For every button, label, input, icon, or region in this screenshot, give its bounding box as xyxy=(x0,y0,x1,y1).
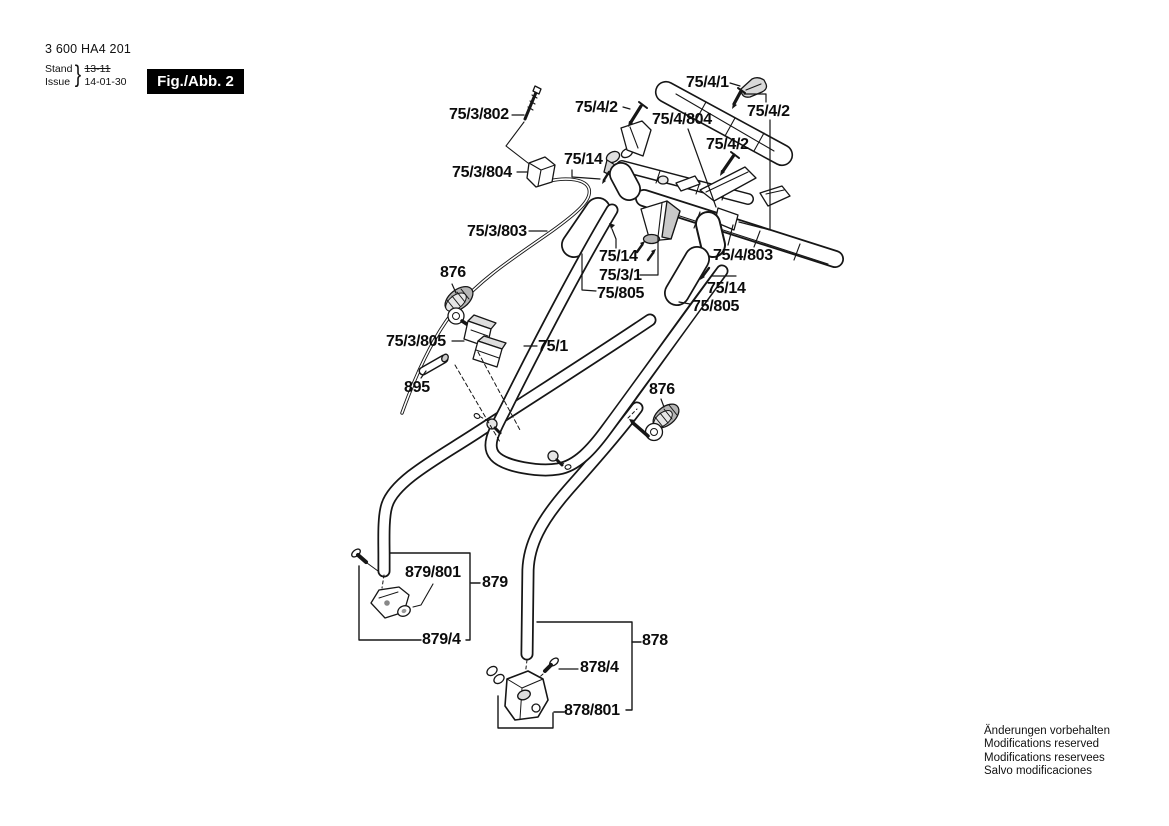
part-label-75-4-2-b: 75/4/2 xyxy=(575,99,618,116)
part-label-75-3-1: 75/3/1 xyxy=(599,267,642,284)
stand-date: 13-11 xyxy=(84,63,126,76)
part-label-75-4-804: 75/4/804 xyxy=(652,111,712,128)
part-label-879-4: 879/4 xyxy=(422,631,461,648)
footer-notes: Änderungen vorbehalten Modifications res… xyxy=(984,725,1110,779)
revision-block: Stand Issue } 13-11 14-01-30 xyxy=(45,63,127,88)
part-label-879-801: 879/801 xyxy=(405,564,461,581)
cable-bolt-and-nut xyxy=(506,86,555,187)
part-label-75-3-804: 75/3/804 xyxy=(452,164,512,181)
footer-note-de: Änderungen vorbehalten xyxy=(984,725,1110,738)
stand-label: Stand xyxy=(45,63,72,76)
parts-diagram-sheet: 3 600 HA4 201 Stand Issue } 13-11 14-01-… xyxy=(0,0,1169,826)
part-label-879: 879 xyxy=(482,574,508,591)
part-label-878-801: 878/801 xyxy=(564,702,620,719)
base-group-879 xyxy=(350,547,480,640)
part-label-75-1: 75/1 xyxy=(538,338,568,355)
part-label-876-a: 876 xyxy=(440,264,466,281)
part-label-75-3-805: 75/3/805 xyxy=(386,333,446,350)
upper-handle-tube xyxy=(473,210,722,470)
part-label-75-3-803: 75/3/803 xyxy=(467,223,527,240)
part-label-75-805-a: 75/805 xyxy=(597,285,644,302)
part-label-75-4-2-c: 75/4/2 xyxy=(706,136,749,153)
footer-note-en: Modifications reserved xyxy=(984,738,1110,751)
issue-label: Issue xyxy=(45,76,72,89)
part-number: 3 600 HA4 201 xyxy=(45,42,131,56)
part-label-75-4-2-a: 75/4/2 xyxy=(747,103,790,120)
issue-date: 14-01-30 xyxy=(84,76,126,89)
part-label-876-b: 876 xyxy=(649,381,675,398)
footer-note-es: Salvo modificaciones xyxy=(984,765,1110,778)
part-label-895: 895 xyxy=(404,379,430,396)
part-label-878-4: 878/4 xyxy=(580,659,619,676)
part-label-75-805-b: 75/805 xyxy=(692,298,739,315)
footer-note-fr: Modifications reservees xyxy=(984,752,1110,765)
cable-clamp xyxy=(464,315,506,367)
part-label-75-14-c: 75/14 xyxy=(707,280,746,297)
figure-label: Fig./Abb. 2 xyxy=(147,69,244,94)
part-label-75-14-b: 75/14 xyxy=(599,248,638,265)
funnel-75-3-1 xyxy=(641,201,680,244)
revision-brace: } xyxy=(75,69,81,82)
part-label-75-4-1: 75/4/1 xyxy=(686,74,729,91)
part-label-75-3-802: 75/3/802 xyxy=(449,106,509,123)
part-label-878: 878 xyxy=(642,632,668,649)
part-label-75-4-803: 75/4/803 xyxy=(713,247,773,264)
part-label-75-14-a: 75/14 xyxy=(564,151,603,168)
lower-tube-right xyxy=(527,408,637,654)
